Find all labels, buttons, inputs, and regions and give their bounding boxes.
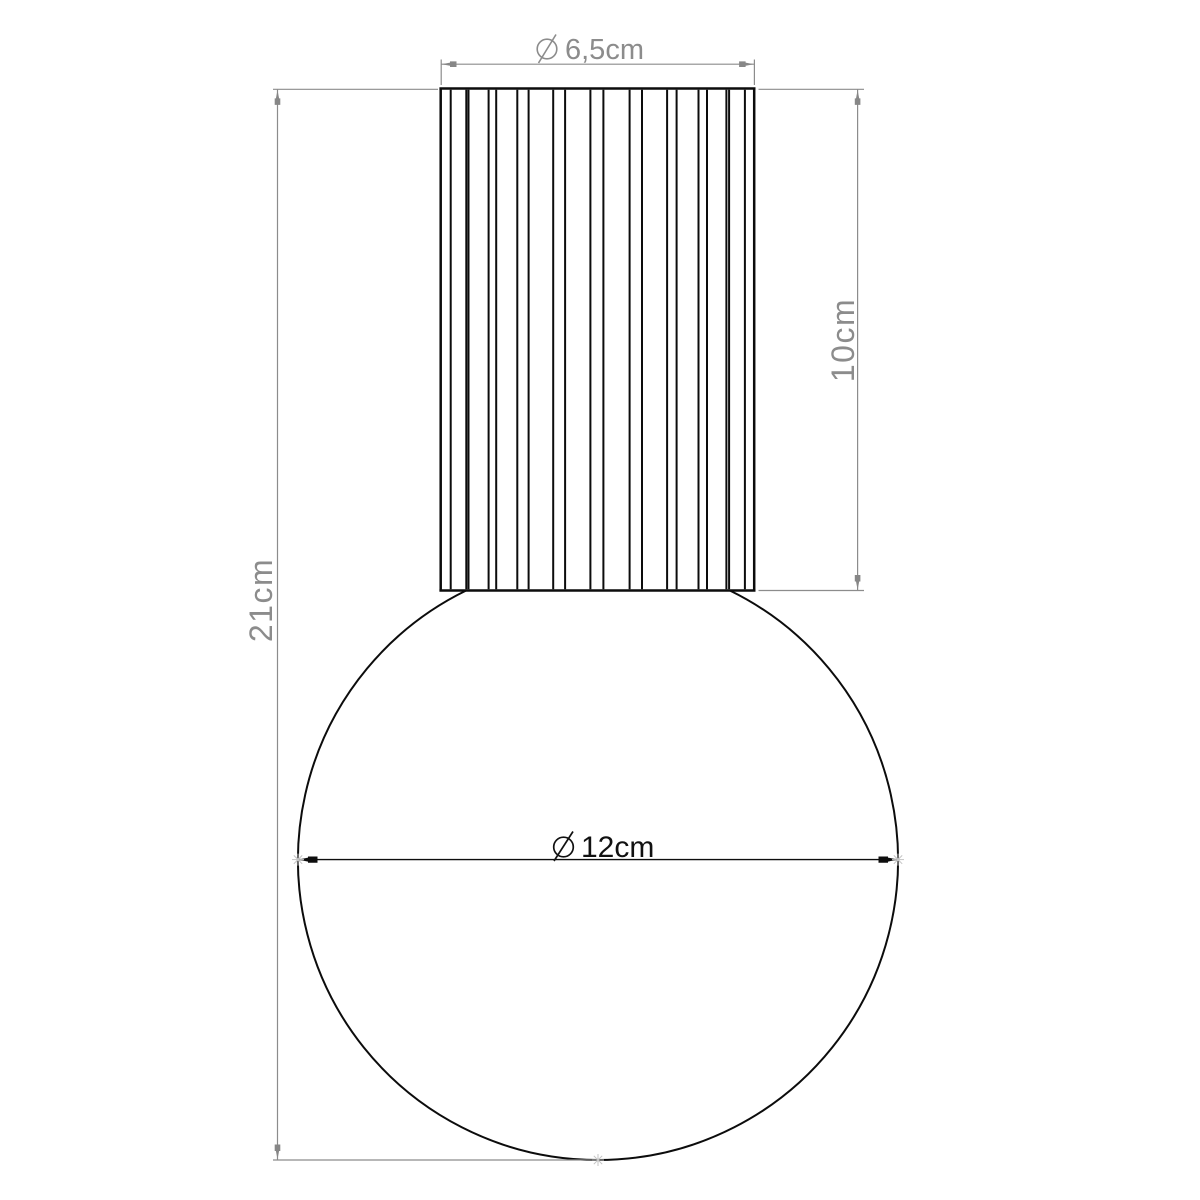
svg-text:10cm: 10cm — [825, 298, 861, 382]
svg-text:6,5cm: 6,5cm — [565, 34, 644, 66]
svg-text:12cm: 12cm — [581, 831, 654, 864]
svg-text:21cm: 21cm — [243, 558, 279, 642]
